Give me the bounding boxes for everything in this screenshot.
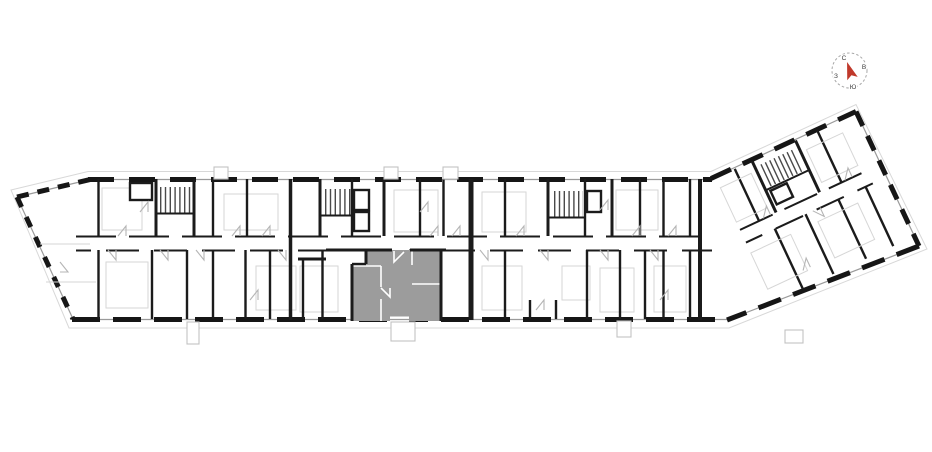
compass-north-label: С xyxy=(842,55,847,62)
selected-apartment-balcony xyxy=(391,322,415,341)
stair-core-wing xyxy=(752,141,820,213)
compass-rose: С В Ю З xyxy=(832,53,867,91)
floor-plan-svg: С В Ю З xyxy=(0,0,932,452)
elevator-shaft xyxy=(130,183,152,200)
elevator-shaft xyxy=(354,190,369,210)
compass-west-label: З xyxy=(834,73,838,80)
selected-apartment-group xyxy=(326,244,446,341)
floor-plan-canvas: С В Ю З xyxy=(0,0,932,452)
elevator-shaft xyxy=(587,191,601,212)
elevator-shaft xyxy=(354,212,369,231)
compass-south-label: Ю xyxy=(850,84,857,91)
stair-core-center xyxy=(320,179,384,236)
compass-north-arrow-icon xyxy=(842,60,858,80)
stair-core-left xyxy=(130,179,194,236)
compass-east-label: В xyxy=(862,64,866,71)
